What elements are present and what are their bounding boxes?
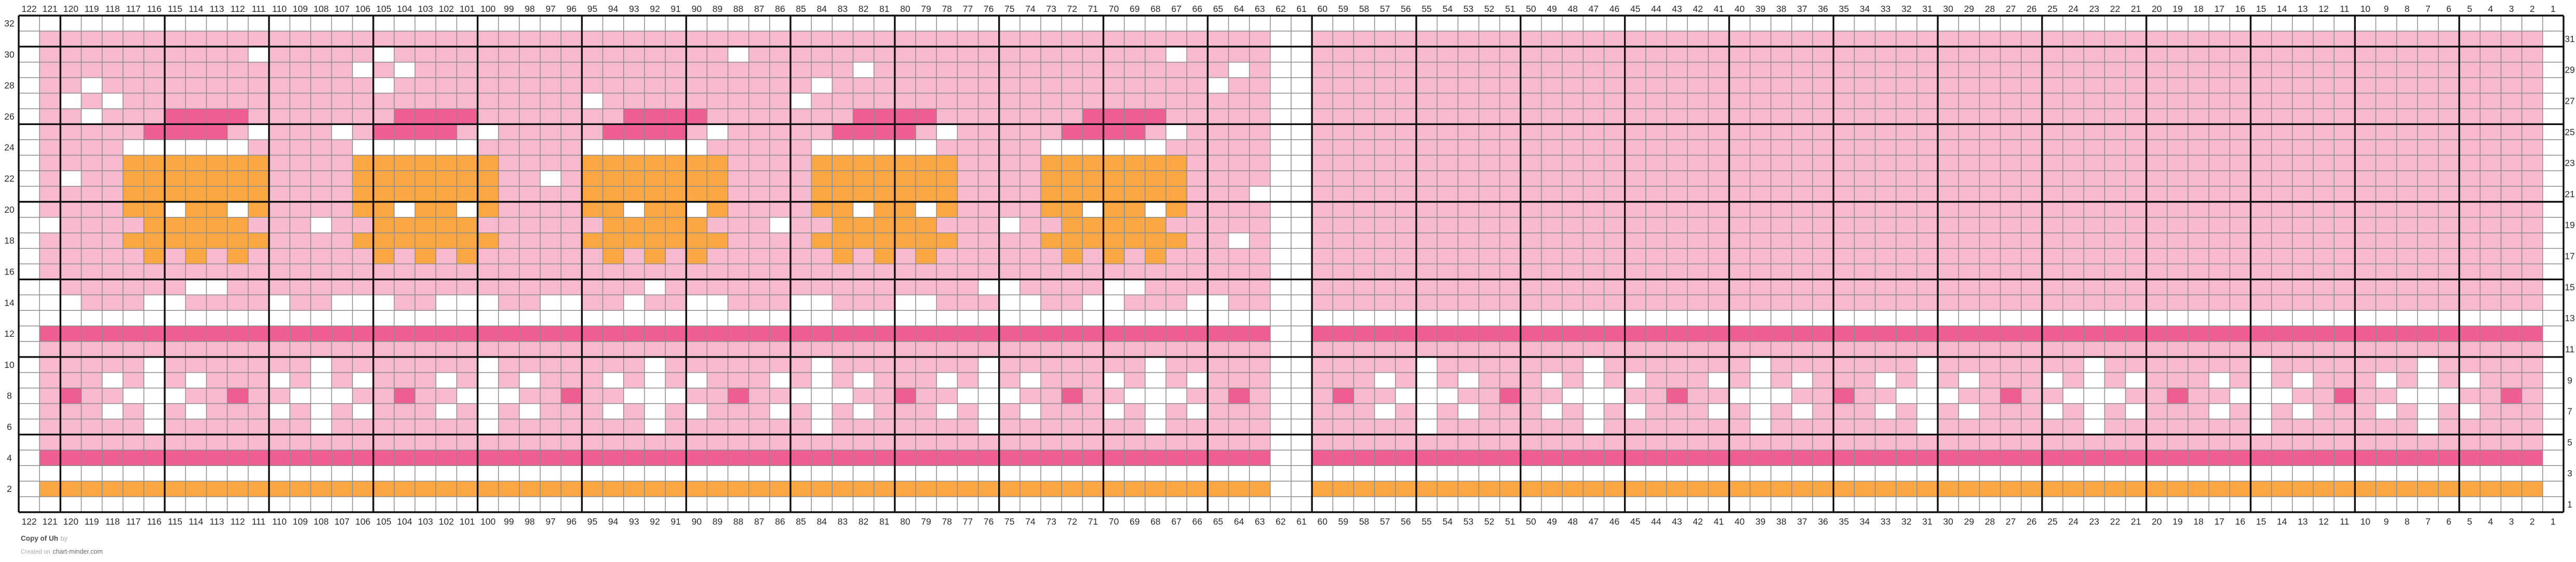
chart-cell[interactable] <box>1396 233 1416 249</box>
chart-cell[interactable] <box>1854 202 1875 217</box>
chart-cell[interactable] <box>311 108 331 124</box>
chart-cell[interactable] <box>81 233 102 249</box>
chart-cell[interactable] <box>1208 31 1228 47</box>
chart-cell[interactable] <box>311 62 331 78</box>
chart-cell[interactable] <box>2376 326 2397 341</box>
chart-cell[interactable] <box>1813 202 1833 217</box>
chart-cell[interactable] <box>1208 419 1228 435</box>
chart-cell[interactable] <box>811 47 832 62</box>
chart-cell[interactable] <box>1979 171 2000 186</box>
chart-cell[interactable] <box>1521 419 1541 435</box>
chart-cell[interactable] <box>2438 31 2459 47</box>
chart-cell[interactable] <box>227 217 248 233</box>
chart-cell[interactable] <box>2063 434 2084 450</box>
chart-cell[interactable] <box>436 357 457 373</box>
chart-cell[interactable] <box>1312 279 1333 295</box>
chart-cell[interactable] <box>2188 124 2209 140</box>
chart-cell[interactable] <box>1604 140 1625 155</box>
chart-cell[interactable] <box>1625 155 1646 171</box>
chart-cell[interactable] <box>1583 279 1604 295</box>
chart-cell[interactable] <box>2167 404 2188 419</box>
chart-cell[interactable] <box>2063 264 2084 280</box>
chart-cell[interactable] <box>2001 481 2021 497</box>
chart-cell[interactable] <box>1124 93 1145 109</box>
chart-cell[interactable] <box>1312 78 1333 93</box>
chart-cell[interactable] <box>1833 264 1854 280</box>
chart-cell[interactable] <box>1708 450 1729 465</box>
chart-cell[interactable] <box>1687 171 1708 186</box>
chart-cell[interactable] <box>206 108 227 124</box>
chart-cell[interactable] <box>1437 279 1458 295</box>
chart-cell[interactable] <box>1979 155 2000 171</box>
chart-cell[interactable] <box>2063 404 2084 419</box>
chart-cell[interactable] <box>1562 140 1583 155</box>
chart-cell[interactable] <box>2397 108 2418 124</box>
chart-cell[interactable] <box>665 31 686 47</box>
chart-cell[interactable] <box>1729 249 1750 264</box>
chart-cell[interactable] <box>331 108 352 124</box>
chart-cell[interactable] <box>2230 264 2250 280</box>
chart-cell[interactable] <box>1020 264 1041 280</box>
chart-cell[interactable] <box>1541 249 1562 264</box>
chart-cell[interactable] <box>2292 78 2313 93</box>
chart-cell[interactable] <box>373 202 394 217</box>
chart-cell[interactable] <box>206 233 227 249</box>
chart-cell[interactable] <box>206 78 227 93</box>
chart-cell[interactable] <box>290 326 311 341</box>
chart-cell[interactable] <box>1082 78 1103 93</box>
chart-cell[interactable] <box>2418 434 2438 450</box>
chart-cell[interactable] <box>1500 186 1521 202</box>
chart-cell[interactable] <box>185 217 206 233</box>
chart-cell[interactable] <box>1312 295 1333 310</box>
chart-cell[interactable] <box>1750 108 1771 124</box>
chart-cell[interactable] <box>2292 481 2313 497</box>
chart-cell[interactable] <box>1062 357 1082 373</box>
chart-cell[interactable] <box>1250 93 1270 109</box>
chart-cell[interactable] <box>1896 47 1917 62</box>
chart-cell[interactable] <box>2230 155 2250 171</box>
chart-cell[interactable] <box>227 108 248 124</box>
chart-cell[interactable] <box>561 249 582 264</box>
chart-cell[interactable] <box>2397 249 2418 264</box>
chart-cell[interactable] <box>1416 450 1437 465</box>
chart-cell[interactable] <box>1896 186 1917 202</box>
chart-cell[interactable] <box>2522 124 2543 140</box>
chart-cell[interactable] <box>1708 217 1729 233</box>
chart-cell[interactable] <box>936 108 957 124</box>
chart-cell[interactable] <box>2334 341 2355 357</box>
chart-cell[interactable] <box>645 233 665 249</box>
chart-cell[interactable] <box>1437 31 1458 47</box>
chart-cell[interactable] <box>2251 341 2272 357</box>
chart-cell[interactable] <box>1958 295 1979 310</box>
chart-cell[interactable] <box>1458 186 1479 202</box>
chart-cell[interactable] <box>478 233 499 249</box>
chart-cell[interactable] <box>2522 186 2543 202</box>
chart-cell[interactable] <box>790 264 811 280</box>
chart-cell[interactable] <box>540 31 561 47</box>
chart-cell[interactable] <box>1771 481 1792 497</box>
chart-cell[interactable] <box>415 108 436 124</box>
chart-cell[interactable] <box>1958 78 1979 93</box>
chart-cell[interactable] <box>853 388 874 404</box>
chart-cell[interactable] <box>1667 434 1687 450</box>
chart-cell[interactable] <box>2501 450 2522 465</box>
chart-cell[interactable] <box>582 124 602 140</box>
chart-cell[interactable] <box>415 171 436 186</box>
chart-cell[interactable] <box>1145 434 1166 450</box>
chart-cell[interactable] <box>185 264 206 280</box>
chart-cell[interactable] <box>1333 341 1353 357</box>
chart-cell[interactable] <box>165 450 185 465</box>
chart-cell[interactable] <box>2251 47 2272 62</box>
chart-cell[interactable] <box>311 264 331 280</box>
chart-cell[interactable] <box>81 155 102 171</box>
chart-cell[interactable] <box>1646 124 1667 140</box>
chart-cell[interactable] <box>39 373 60 388</box>
chart-cell[interactable] <box>1082 47 1103 62</box>
chart-cell[interactable] <box>999 481 1020 497</box>
chart-cell[interactable] <box>2334 404 2355 419</box>
chart-cell[interactable] <box>2063 93 2084 109</box>
chart-cell[interactable] <box>603 388 624 404</box>
chart-cell[interactable] <box>1562 186 1583 202</box>
chart-cell[interactable] <box>770 155 790 171</box>
chart-cell[interactable] <box>2376 93 2397 109</box>
chart-cell[interactable] <box>499 155 519 171</box>
chart-cell[interactable] <box>645 481 665 497</box>
chart-cell[interactable] <box>415 155 436 171</box>
chart-cell[interactable] <box>499 264 519 280</box>
chart-cell[interactable] <box>1792 481 1813 497</box>
chart-cell[interactable] <box>790 434 811 450</box>
chart-cell[interactable] <box>311 155 331 171</box>
chart-cell[interactable] <box>2522 249 2543 264</box>
chart-cell[interactable] <box>1833 62 1854 78</box>
chart-cell[interactable] <box>1208 155 1228 171</box>
chart-cell[interactable] <box>2001 419 2021 435</box>
chart-cell[interactable] <box>832 124 853 140</box>
chart-cell[interactable] <box>394 171 415 186</box>
chart-cell[interactable] <box>478 186 499 202</box>
chart-cell[interactable] <box>1917 186 1938 202</box>
chart-cell[interactable] <box>1792 264 1813 280</box>
chart-cell[interactable] <box>1813 171 1833 186</box>
chart-cell[interactable] <box>1166 78 1187 93</box>
chart-cell[interactable] <box>331 31 352 47</box>
chart-cell[interactable] <box>1979 233 2000 249</box>
chart-cell[interactable] <box>1854 47 1875 62</box>
chart-cell[interactable] <box>60 155 81 171</box>
chart-cell[interactable] <box>2418 450 2438 465</box>
chart-cell[interactable] <box>1604 249 1625 264</box>
chart-cell[interactable] <box>81 326 102 341</box>
chart-cell[interactable] <box>2438 357 2459 373</box>
chart-cell[interactable] <box>2021 326 2042 341</box>
chart-cell[interactable] <box>519 140 540 155</box>
chart-cell[interactable] <box>707 326 728 341</box>
chart-cell[interactable] <box>561 279 582 295</box>
chart-cell[interactable] <box>123 264 144 280</box>
chart-cell[interactable] <box>290 155 311 171</box>
chart-cell[interactable] <box>1437 404 1458 419</box>
chart-cell[interactable] <box>2251 31 2272 47</box>
chart-cell[interactable] <box>2355 233 2376 249</box>
chart-cell[interactable] <box>2146 341 2167 357</box>
chart-cell[interactable] <box>60 264 81 280</box>
chart-cell[interactable] <box>2146 419 2167 435</box>
chart-cell[interactable] <box>1375 202 1396 217</box>
chart-cell[interactable] <box>2230 78 2250 93</box>
chart-cell[interactable] <box>248 171 269 186</box>
chart-cell[interactable] <box>1500 31 1521 47</box>
chart-cell[interactable] <box>2104 78 2125 93</box>
chart-cell[interactable] <box>1833 450 1854 465</box>
chart-cell[interactable] <box>1833 326 1854 341</box>
chart-cell[interactable] <box>394 419 415 435</box>
chart-cell[interactable] <box>2334 155 2355 171</box>
chart-cell[interactable] <box>2397 404 2418 419</box>
chart-cell[interactable] <box>2188 108 2209 124</box>
chart-cell[interactable] <box>206 202 227 217</box>
chart-cell[interactable] <box>1250 62 1270 78</box>
chart-cell[interactable] <box>39 140 60 155</box>
chart-cell[interactable] <box>2355 434 2376 450</box>
chart-cell[interactable] <box>1145 93 1166 109</box>
chart-cell[interactable] <box>1667 124 1687 140</box>
chart-cell[interactable] <box>1667 171 1687 186</box>
chart-cell[interactable] <box>60 373 81 388</box>
chart-cell[interactable] <box>2188 434 2209 450</box>
chart-cell[interactable] <box>1082 481 1103 497</box>
chart-cell[interactable] <box>2272 124 2292 140</box>
chart-cell[interactable] <box>1541 217 1562 233</box>
chart-cell[interactable] <box>665 186 686 202</box>
chart-cell[interactable] <box>707 108 728 124</box>
chart-cell[interactable] <box>790 108 811 124</box>
chart-cell[interactable] <box>957 264 978 280</box>
chart-cell[interactable] <box>1353 341 1374 357</box>
chart-cell[interactable] <box>1583 264 1604 280</box>
chart-cell[interactable] <box>2292 388 2313 404</box>
chart-cell[interactable] <box>1813 264 1833 280</box>
chart-cell[interactable] <box>123 434 144 450</box>
chart-cell[interactable] <box>1813 140 1833 155</box>
chart-cell[interactable] <box>2313 93 2334 109</box>
chart-cell[interactable] <box>1938 124 1958 140</box>
chart-cell[interactable] <box>1667 419 1687 435</box>
chart-cell[interactable] <box>2167 357 2188 373</box>
chart-cell[interactable] <box>60 140 81 155</box>
chart-cell[interactable] <box>978 108 999 124</box>
chart-cell[interactable] <box>1625 481 1646 497</box>
chart-cell[interactable] <box>1625 31 1646 47</box>
chart-cell[interactable] <box>2334 434 2355 450</box>
chart-cell[interactable] <box>1500 140 1521 155</box>
chart-cell[interactable] <box>2230 419 2250 435</box>
chart-cell[interactable] <box>1375 249 1396 264</box>
chart-cell[interactable] <box>2501 62 2522 78</box>
chart-cell[interactable] <box>2251 140 2272 155</box>
chart-cell[interactable] <box>436 62 457 78</box>
chart-cell[interactable] <box>2438 47 2459 62</box>
chart-cell[interactable] <box>1562 217 1583 233</box>
chart-cell[interactable] <box>728 31 749 47</box>
chart-cell[interactable] <box>749 47 770 62</box>
chart-cell[interactable] <box>1208 62 1228 78</box>
chart-cell[interactable] <box>1521 264 1541 280</box>
chart-cell[interactable] <box>895 186 916 202</box>
chart-cell[interactable] <box>248 62 269 78</box>
chart-cell[interactable] <box>2459 388 2480 404</box>
chart-cell[interactable] <box>2167 124 2188 140</box>
chart-cell[interactable] <box>1771 124 1792 140</box>
chart-cell[interactable] <box>2001 124 2021 140</box>
chart-cell[interactable] <box>1729 124 1750 140</box>
chart-cell[interactable] <box>2230 326 2250 341</box>
chart-cell[interactable] <box>936 78 957 93</box>
chart-cell[interactable] <box>2126 450 2146 465</box>
chart-cell[interactable] <box>1124 357 1145 373</box>
chart-cell[interactable] <box>936 264 957 280</box>
chart-cell[interactable] <box>2313 419 2334 435</box>
chart-cell[interactable] <box>1875 450 1896 465</box>
chart-cell[interactable] <box>331 155 352 171</box>
chart-cell[interactable] <box>1458 357 1479 373</box>
chart-cell[interactable] <box>1521 326 1541 341</box>
chart-cell[interactable] <box>1124 233 1145 249</box>
chart-cell[interactable] <box>436 249 457 264</box>
chart-cell[interactable] <box>248 78 269 93</box>
chart-cell[interactable] <box>311 124 331 140</box>
chart-cell[interactable] <box>457 326 477 341</box>
chart-cell[interactable] <box>582 249 602 264</box>
chart-cell[interactable] <box>2230 217 2250 233</box>
chart-cell[interactable] <box>1771 93 1792 109</box>
chart-cell[interactable] <box>1729 264 1750 280</box>
chart-cell[interactable] <box>1166 373 1187 388</box>
chart-cell[interactable] <box>1124 404 1145 419</box>
chart-cell[interactable] <box>2188 419 2209 435</box>
chart-cell[interactable] <box>1667 249 1687 264</box>
chart-cell[interactable] <box>1312 481 1333 497</box>
chart-cell[interactable] <box>60 78 81 93</box>
chart-cell[interactable] <box>1208 341 1228 357</box>
chart-cell[interactable] <box>1813 93 1833 109</box>
chart-cell[interactable] <box>2042 341 2063 357</box>
chart-cell[interactable] <box>999 62 1020 78</box>
chart-cell[interactable] <box>1646 419 1667 435</box>
chart-cell[interactable] <box>499 93 519 109</box>
chart-cell[interactable] <box>2104 419 2125 435</box>
chart-cell[interactable] <box>1479 295 1499 310</box>
chart-cell[interactable] <box>1604 326 1625 341</box>
chart-cell[interactable] <box>1124 481 1145 497</box>
chart-cell[interactable] <box>2084 78 2104 93</box>
chart-cell[interactable] <box>1646 31 1667 47</box>
chart-cell[interactable] <box>2376 62 2397 78</box>
chart-cell[interactable] <box>2167 78 2188 93</box>
chart-cell[interactable] <box>1208 202 1228 217</box>
chart-cell[interactable] <box>1833 249 1854 264</box>
chart-cell[interactable] <box>373 155 394 171</box>
chart-cell[interactable] <box>2001 47 2021 62</box>
chart-cell[interactable] <box>2418 264 2438 280</box>
chart-cell[interactable] <box>2397 186 2418 202</box>
chart-cell[interactable] <box>2459 233 2480 249</box>
chart-cell[interactable] <box>561 388 582 404</box>
chart-cell[interactable] <box>2104 295 2125 310</box>
chart-cell[interactable] <box>582 434 602 450</box>
chart-cell[interactable] <box>2126 202 2146 217</box>
chart-cell[interactable] <box>478 481 499 497</box>
chart-cell[interactable] <box>2272 233 2292 249</box>
chart-cell[interactable] <box>2438 264 2459 280</box>
chart-cell[interactable] <box>2167 373 2188 388</box>
chart-cell[interactable] <box>2313 78 2334 93</box>
chart-cell[interactable] <box>1792 419 1813 435</box>
chart-cell[interactable] <box>2313 341 2334 357</box>
chart-cell[interactable] <box>2001 249 2021 264</box>
chart-cell[interactable] <box>2001 155 2021 171</box>
chart-cell[interactable] <box>1750 93 1771 109</box>
chart-cell[interactable] <box>2438 140 2459 155</box>
chart-cell[interactable] <box>1562 279 1583 295</box>
chart-cell[interactable] <box>978 434 999 450</box>
chart-cell[interactable] <box>185 108 206 124</box>
chart-cell[interactable] <box>1353 373 1374 388</box>
chart-cell[interactable] <box>1333 31 1353 47</box>
chart-cell[interactable] <box>1708 249 1729 264</box>
chart-cell[interactable] <box>1833 124 1854 140</box>
chart-cell[interactable] <box>853 233 874 249</box>
chart-cell[interactable] <box>2397 47 2418 62</box>
chart-cell[interactable] <box>81 279 102 295</box>
chart-cell[interactable] <box>1375 264 1396 280</box>
chart-cell[interactable] <box>1229 140 1250 155</box>
chart-cell[interactable] <box>1437 434 1458 450</box>
chart-cell[interactable] <box>2501 404 2522 419</box>
chart-cell[interactable] <box>394 373 415 388</box>
chart-cell[interactable] <box>499 326 519 341</box>
chart-cell[interactable] <box>1145 155 1166 171</box>
chart-cell[interactable] <box>728 357 749 373</box>
chart-cell[interactable] <box>2209 450 2230 465</box>
chart-cell[interactable] <box>185 155 206 171</box>
chart-cell[interactable] <box>1375 140 1396 155</box>
chart-cell[interactable] <box>2376 450 2397 465</box>
chart-cell[interactable] <box>749 140 770 155</box>
chart-cell[interactable] <box>2376 388 2397 404</box>
chart-cell[interactable] <box>165 78 185 93</box>
chart-cell[interactable] <box>1562 419 1583 435</box>
chart-cell[interactable] <box>2001 93 2021 109</box>
chart-cell[interactable] <box>770 388 790 404</box>
chart-cell[interactable] <box>2084 233 2104 249</box>
chart-cell[interactable] <box>39 186 60 202</box>
chart-cell[interactable] <box>1250 373 1270 388</box>
chart-cell[interactable] <box>1145 217 1166 233</box>
chart-cell[interactable] <box>2292 326 2313 341</box>
chart-cell[interactable] <box>624 249 645 264</box>
chart-cell[interactable] <box>1562 108 1583 124</box>
chart-cell[interactable] <box>603 279 624 295</box>
chart-cell[interactable] <box>1729 31 1750 47</box>
chart-cell[interactable] <box>1458 78 1479 93</box>
chart-cell[interactable] <box>1124 217 1145 233</box>
chart-cell[interactable] <box>1041 388 1062 404</box>
